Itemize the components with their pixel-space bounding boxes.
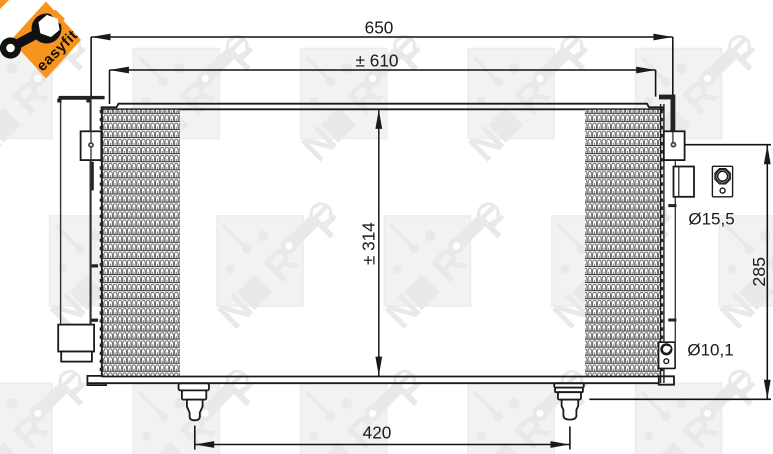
svg-text:650: 650 xyxy=(365,18,394,38)
svg-text:Ø15,5: Ø15,5 xyxy=(688,210,734,229)
svg-text:± 610: ± 610 xyxy=(356,51,399,71)
svg-text:± 314: ± 314 xyxy=(359,222,379,265)
svg-text:420: 420 xyxy=(363,423,392,443)
svg-text:Ø10,1: Ø10,1 xyxy=(687,341,733,360)
svg-text:285: 285 xyxy=(749,257,769,287)
